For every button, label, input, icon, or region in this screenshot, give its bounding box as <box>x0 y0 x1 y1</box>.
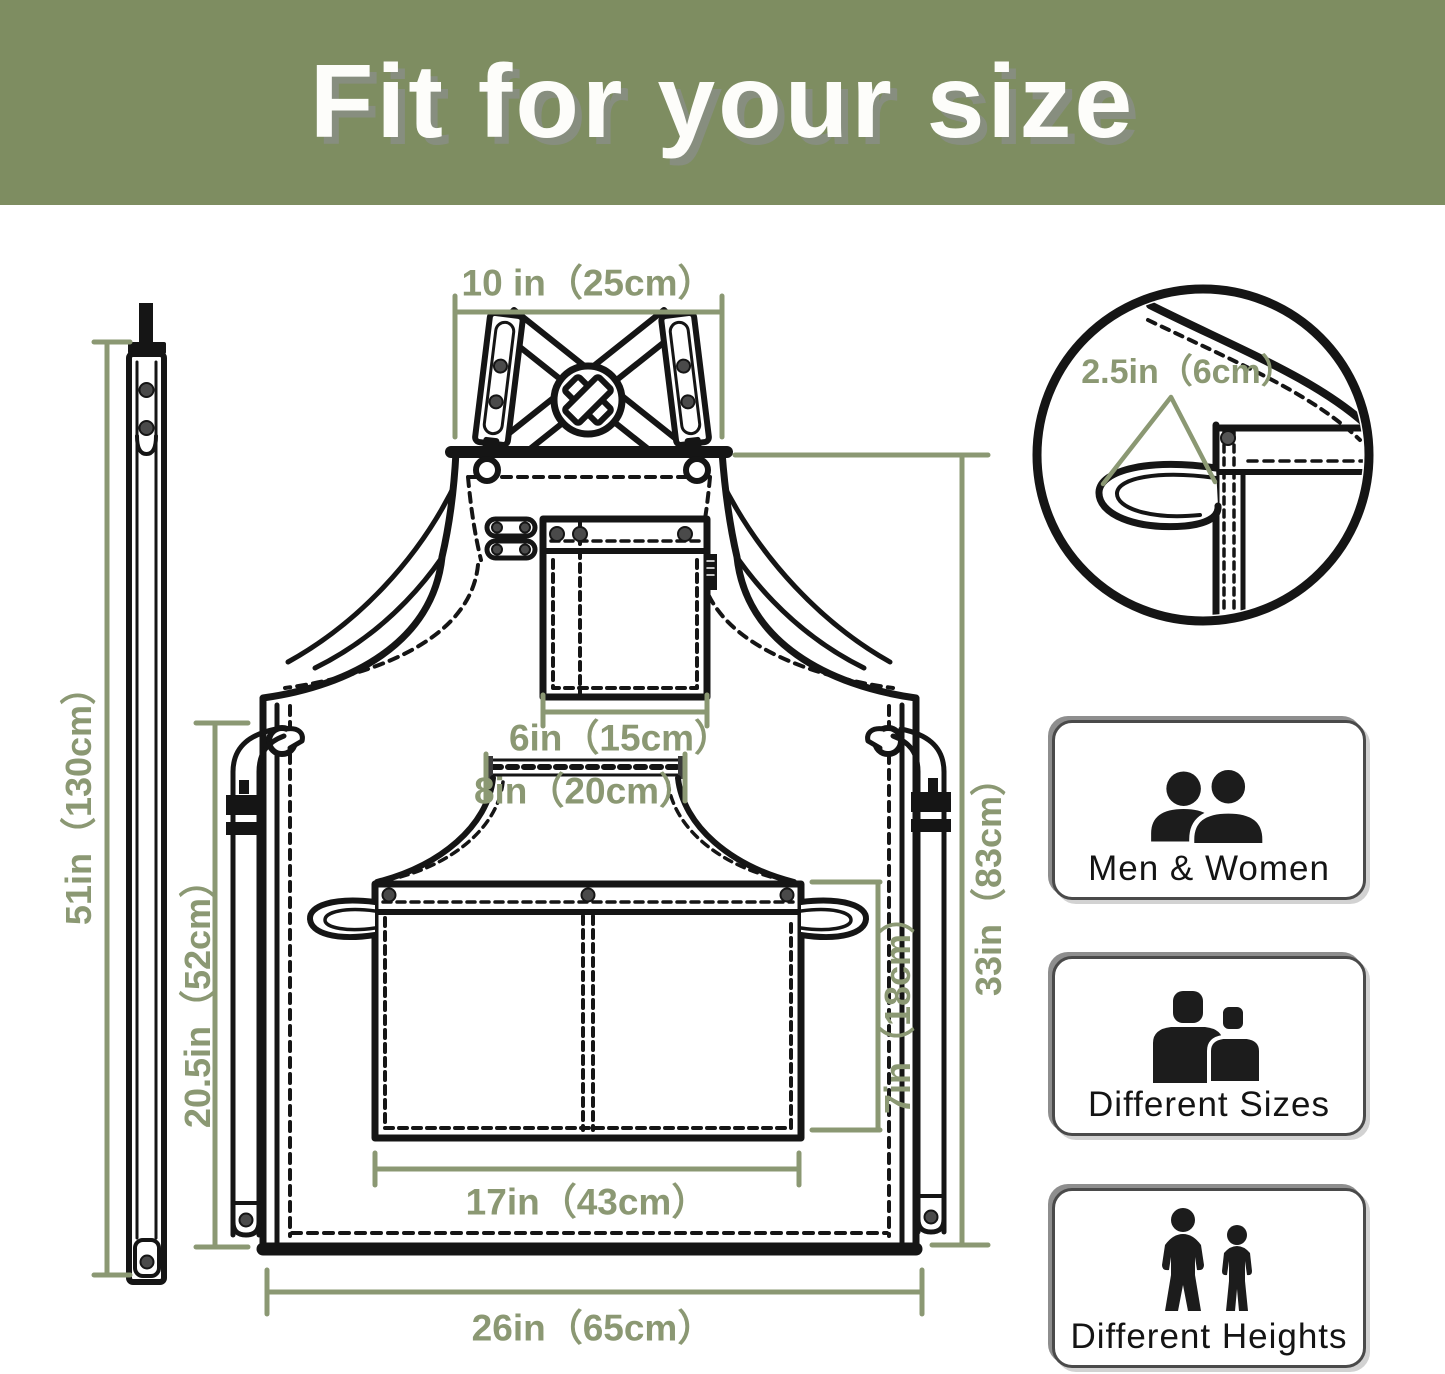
dim-waist-pocket-width: 17in（43cm） <box>466 1184 709 1221</box>
right-towel-loop <box>801 901 866 937</box>
feature-label: Different Sizes <box>1088 1085 1330 1125</box>
feature-label: Men & Women <box>1088 849 1330 889</box>
hanging-strap <box>128 303 166 1282</box>
waist-pocket <box>375 884 801 1138</box>
dim-side-strap-length: 20.5in（52cm） <box>180 862 216 1128</box>
men-women-icon <box>1143 723 1275 849</box>
dim-full-strap-length: 51in（130cm） <box>61 669 97 925</box>
dim-waist-pocket-height: 7in（18cm） <box>880 898 916 1114</box>
strap-buckle-icon <box>554 366 622 434</box>
different-heights-icon <box>1149 1191 1269 1317</box>
feature-card-different-heights: Different Heights <box>1052 1188 1366 1368</box>
dim-hem-width: 26in（65cm） <box>472 1310 715 1347</box>
brand-tag <box>704 554 717 590</box>
left-towel-loop <box>310 901 375 937</box>
loop-detail-callout <box>1037 289 1372 621</box>
feature-card-different-sizes: Different Sizes <box>1052 956 1366 1136</box>
apron-size-diagram <box>0 0 1445 1374</box>
dim-body-length: 33in（83cm） <box>971 760 1007 996</box>
chest-pocket <box>543 519 717 697</box>
feature-card-men-women: Men & Women <box>1052 720 1366 900</box>
dim-chest-pocket-width: 6in（15cm） <box>509 720 731 757</box>
dim-waist-opening-width: 8in（20cm） <box>474 773 696 810</box>
dim-neck-strap-top-width: 10 in（25cm） <box>462 265 715 302</box>
detail-towel-loop <box>1099 464 1218 526</box>
different-sizes-icon <box>1149 959 1269 1085</box>
feature-label: Different Heights <box>1070 1317 1347 1357</box>
dim-towel-loop-width: 2.5in（6cm） <box>1081 355 1295 389</box>
